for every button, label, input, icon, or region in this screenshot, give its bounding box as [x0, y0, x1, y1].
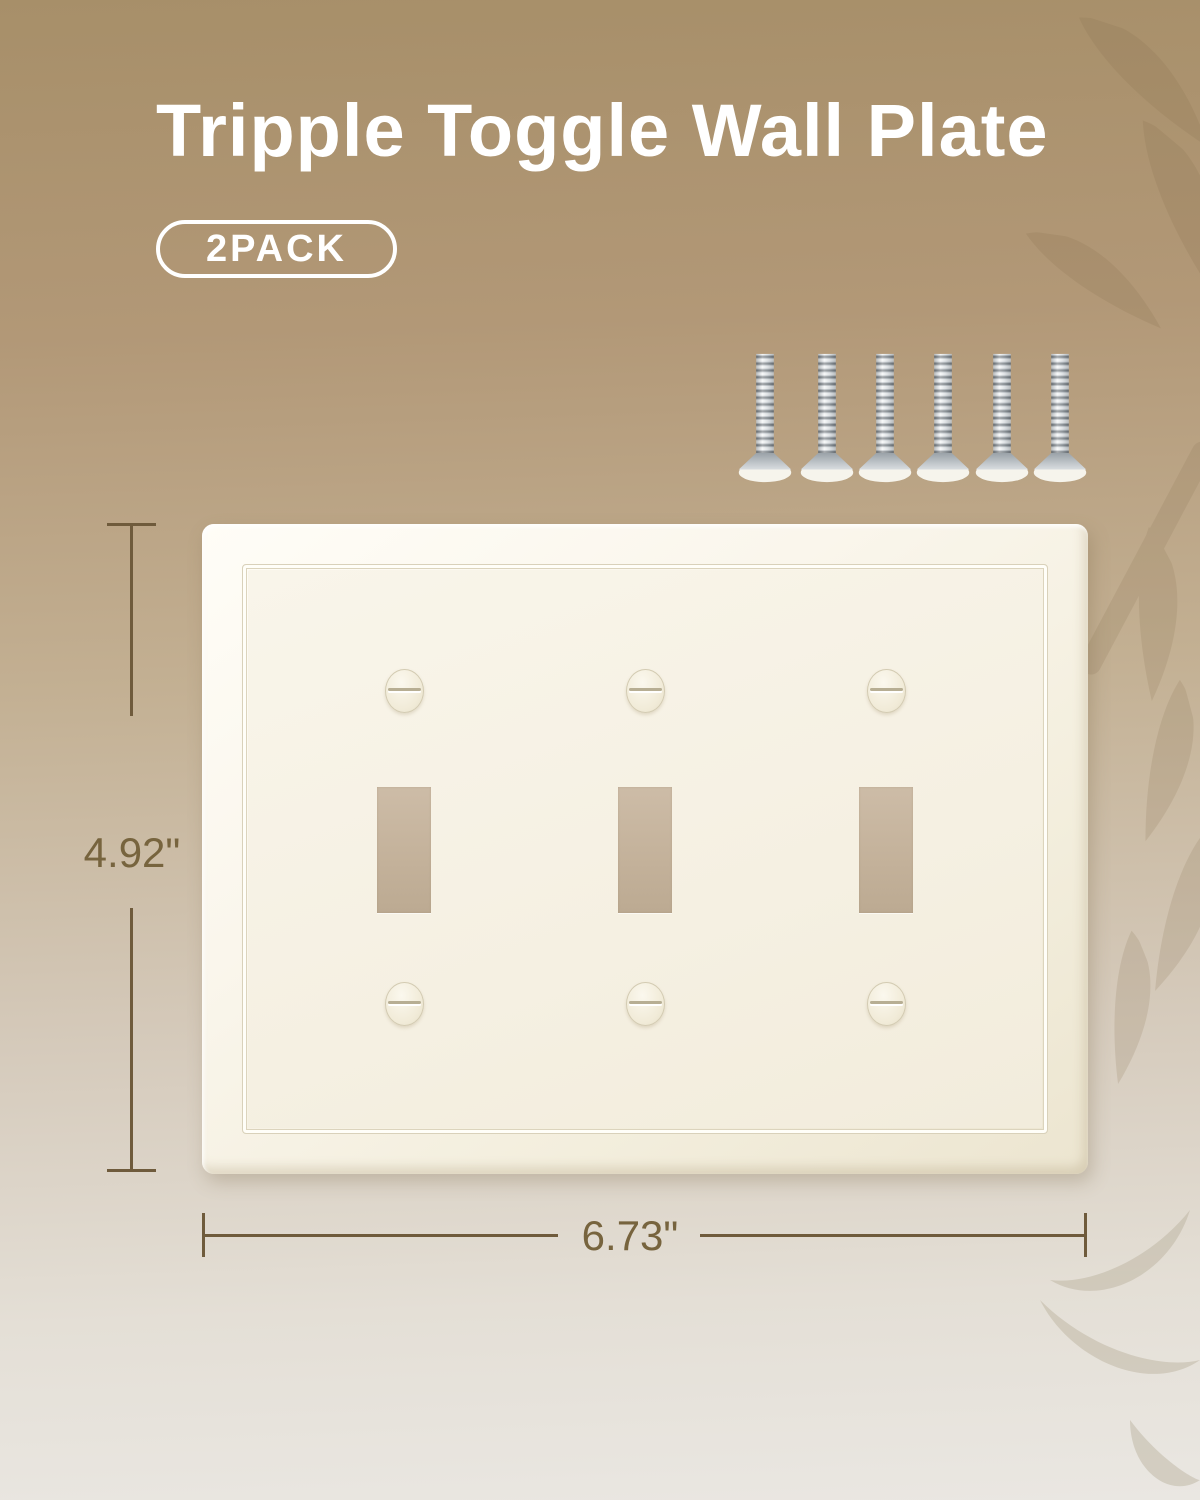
toggle-column: [615, 570, 675, 1128]
plate-screw-icon: [626, 982, 665, 1026]
mounting-screw-icon: [797, 352, 857, 488]
screw-slot: [629, 688, 662, 691]
plate-screw-icon: [867, 982, 906, 1026]
dimension-line: [700, 1234, 1086, 1237]
height-dimension-label: 4.92": [66, 832, 198, 874]
dimension-line: [130, 526, 133, 716]
plate-screw-icon: [385, 982, 424, 1026]
mounting-screw-icon: [735, 352, 795, 488]
toggle-column: [374, 570, 434, 1128]
product-title: Tripple Toggle Wall Plate: [156, 94, 1049, 168]
dimension-cap: [1084, 1213, 1087, 1257]
mounting-screw-icon: [1030, 352, 1090, 488]
plate-face: [248, 570, 1042, 1128]
toggle-cutout: [618, 787, 672, 913]
screw-slot: [629, 1001, 662, 1004]
toggle-cutout: [377, 787, 431, 913]
plate-screw-icon: [626, 669, 665, 713]
product-hero-image: Tripple Toggle Wall Plate 2PACK: [0, 0, 1200, 1500]
plate-screw-icon: [385, 669, 424, 713]
pack-count-label: 2PACK: [206, 228, 347, 271]
width-dimension-label: 6.73": [558, 1215, 702, 1257]
screw-slot: [870, 688, 903, 691]
toggle-column: [856, 570, 916, 1128]
toggle-cutout: [859, 787, 913, 913]
mounting-screw-icon: [972, 352, 1032, 488]
dimension-line: [130, 908, 133, 1169]
wall-plate: [202, 524, 1088, 1174]
mounting-screw-icon: [855, 352, 915, 488]
dimension-line: [204, 1234, 558, 1237]
mounting-screw-icon: [913, 352, 973, 488]
screw-slot: [388, 1001, 421, 1004]
plate-screw-icon: [867, 669, 906, 713]
dimension-cap: [107, 1169, 156, 1172]
screw-slot: [870, 1001, 903, 1004]
screw-slot: [388, 688, 421, 691]
pack-count-badge: 2PACK: [156, 220, 397, 278]
